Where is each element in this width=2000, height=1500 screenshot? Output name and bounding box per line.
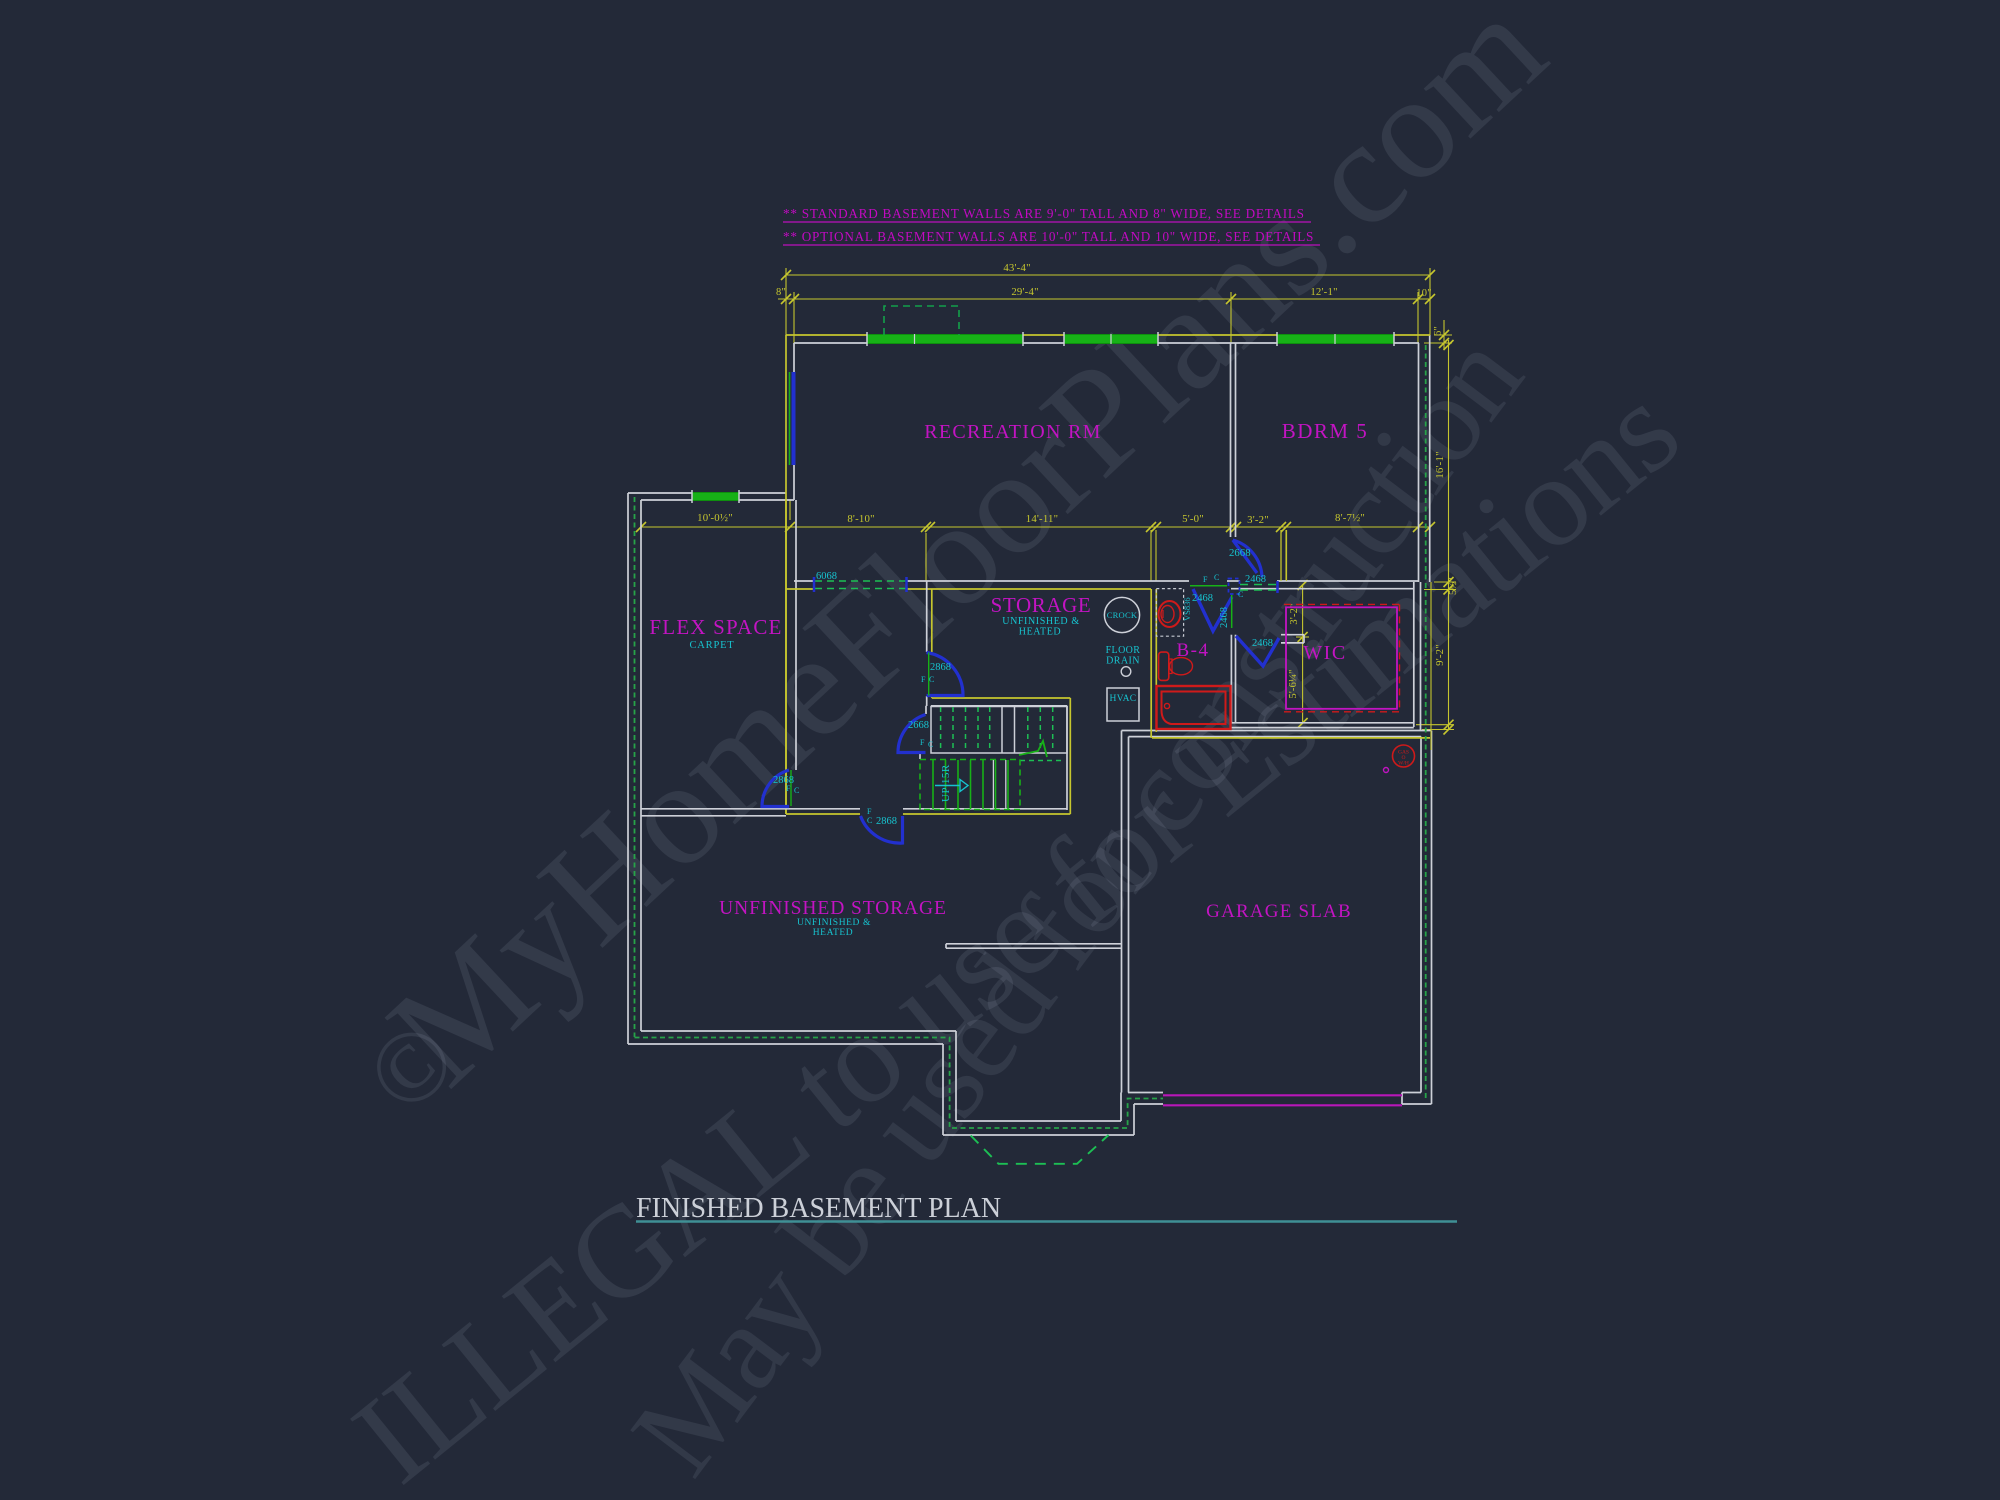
svg-text:5'-0": 5'-0" — [1182, 513, 1204, 525]
svg-text:GARAGE SLAB: GARAGE SLAB — [1206, 901, 1352, 922]
svg-text:29'-4": 29'-4" — [1011, 286, 1038, 298]
svg-text:** OPTIONAL BASEMENT WALLS ARE: ** OPTIONAL BASEMENT WALLS ARE 10'-0" TA… — [783, 229, 1314, 244]
svg-text:B-4: B-4 — [1177, 640, 1210, 661]
svg-text:C: C — [1238, 590, 1243, 599]
svg-text:FLOOR: FLOOR — [1106, 645, 1141, 656]
svg-text:2468: 2468 — [1245, 574, 1266, 585]
svg-text:C: C — [1214, 573, 1219, 582]
svg-text:14'-11": 14'-11" — [1026, 513, 1059, 525]
svg-text:UNFINISHED STORAGE: UNFINISHED STORAGE — [719, 898, 947, 919]
svg-text:F: F — [1203, 575, 1208, 584]
svg-text:W/H: W/H — [1398, 761, 1409, 767]
svg-text:9'-2": 9'-2" — [1434, 644, 1446, 666]
svg-text:10'-0½": 10'-0½" — [697, 512, 733, 524]
svg-text:HEATED: HEATED — [1019, 627, 1061, 638]
svg-text:** STANDARD BASEMENT WALLS ARE: ** STANDARD BASEMENT WALLS ARE 9'-0" TAL… — [783, 206, 1305, 221]
svg-text:C: C — [928, 740, 933, 749]
svg-text:F: F — [867, 807, 872, 816]
svg-text:5'-6¼": 5'-6¼" — [1288, 669, 1299, 698]
svg-text:C: C — [867, 816, 872, 825]
svg-text:6068: 6068 — [816, 571, 837, 582]
svg-text:HVAC: HVAC — [1110, 694, 1137, 704]
svg-text:F: F — [786, 784, 791, 793]
svg-text:F: F — [920, 738, 925, 747]
svg-text:2668: 2668 — [908, 720, 929, 731]
svg-text:UP 15R: UP 15R — [940, 764, 952, 802]
svg-text:UNFINISHED &: UNFINISHED & — [797, 918, 871, 928]
svg-text:8": 8" — [776, 287, 786, 298]
svg-text:16'-1": 16'-1" — [1434, 451, 1446, 478]
svg-text:10": 10" — [1416, 288, 1431, 299]
svg-text:C: C — [794, 786, 799, 795]
svg-text:DRAIN: DRAIN — [1106, 656, 1140, 667]
svg-text:F: F — [921, 675, 926, 684]
svg-text:2668: 2668 — [1229, 547, 1251, 559]
svg-text:C: C — [929, 675, 934, 684]
svg-text:STORAGE: STORAGE — [991, 593, 1092, 617]
svg-text:2868: 2868 — [930, 662, 951, 673]
svg-text:BDRM 5: BDRM 5 — [1282, 419, 1369, 443]
svg-text:2868: 2868 — [773, 775, 794, 786]
svg-text:FLEX SPACE: FLEX SPACE — [649, 615, 782, 639]
svg-text:5½": 5½" — [1448, 577, 1459, 595]
svg-text:VS836: VS836 — [1182, 597, 1192, 621]
svg-text:6": 6" — [1433, 326, 1444, 336]
svg-text:2468: 2468 — [1219, 607, 1230, 628]
svg-text:RECREATION RM: RECREATION RM — [924, 421, 1101, 443]
svg-text:FINISHED BASEMENT PLAN: FINISHED BASEMENT PLAN — [636, 1193, 1001, 1224]
svg-text:2468: 2468 — [1192, 593, 1213, 604]
svg-text:CARPET: CARPET — [689, 640, 734, 651]
svg-text:3'-2": 3'-2" — [1247, 514, 1269, 526]
svg-text:WIC: WIC — [1303, 642, 1346, 664]
svg-text:HEATED: HEATED — [813, 928, 854, 938]
svg-text:2868: 2868 — [876, 816, 897, 827]
svg-text:CROCK: CROCK — [1107, 610, 1138, 620]
svg-text:43'-4": 43'-4" — [1003, 262, 1030, 274]
svg-text:12'-1": 12'-1" — [1310, 286, 1337, 298]
svg-text:2468: 2468 — [1252, 638, 1273, 649]
svg-text:8'-7½": 8'-7½" — [1335, 512, 1365, 524]
svg-text:UNFINISHED &: UNFINISHED & — [1002, 616, 1079, 627]
svg-text:8'-10": 8'-10" — [847, 513, 874, 525]
